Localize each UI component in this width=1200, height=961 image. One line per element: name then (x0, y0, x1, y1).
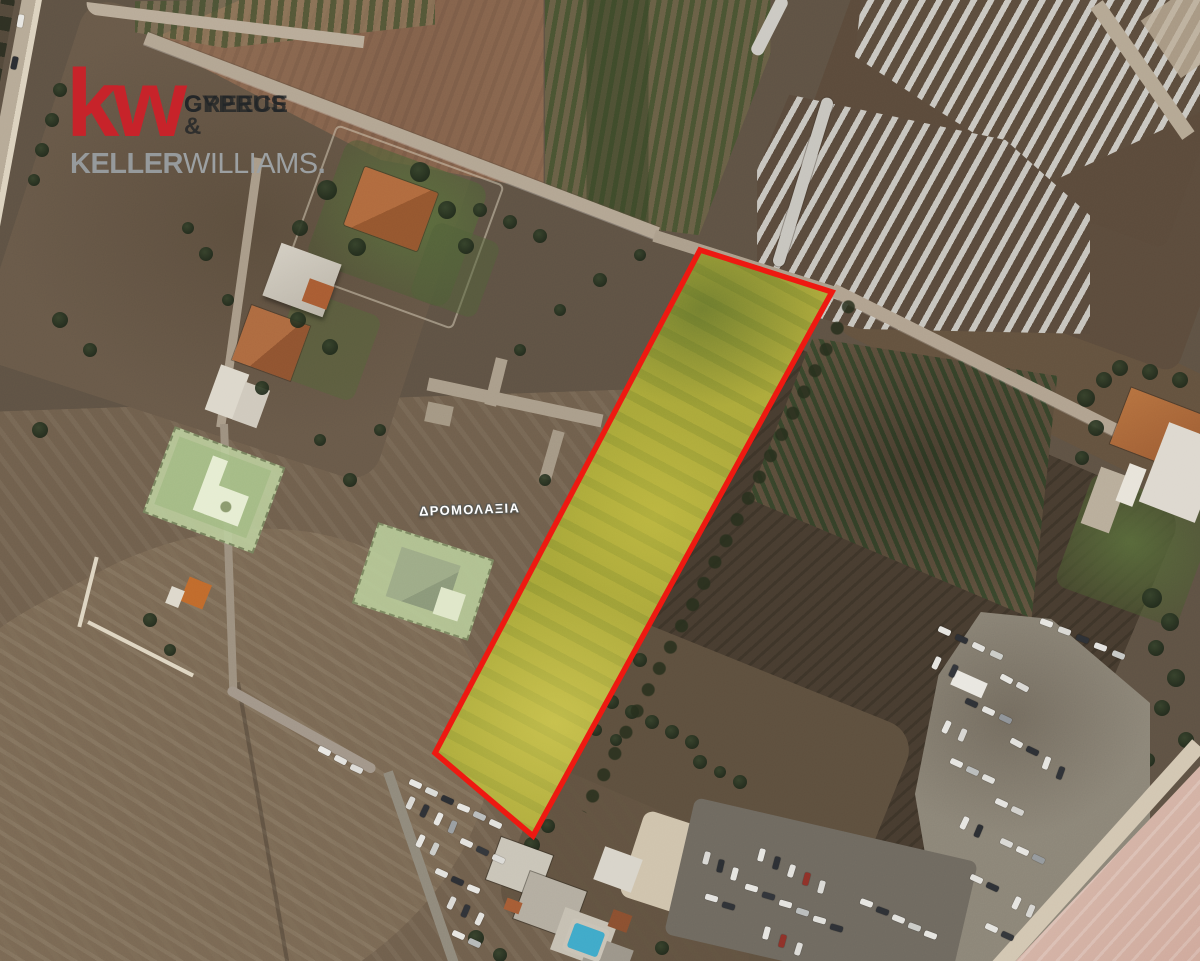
tree (503, 215, 517, 229)
keller-williams-watermark: kw GREECE & CYPRUS KELLERWILLIAMS. (70, 70, 390, 200)
kw-brand-name: KELLERWILLIAMS. (70, 148, 325, 181)
tree (410, 162, 430, 182)
tree (83, 343, 97, 357)
tree (290, 312, 306, 328)
tree (1112, 360, 1128, 376)
tree (164, 644, 176, 656)
tree (1148, 640, 1164, 656)
parcel-highlight-outline (435, 250, 835, 840)
tree (182, 222, 194, 234)
tree (493, 948, 507, 961)
tree (35, 143, 49, 157)
tree (655, 941, 669, 955)
tree (1088, 420, 1104, 436)
tree (1077, 389, 1095, 407)
kw-brand-suffix: . (318, 148, 326, 180)
tree (438, 201, 456, 219)
tree (348, 238, 366, 256)
tree (1167, 669, 1185, 687)
tree (473, 203, 487, 217)
kw-brand-regular: WILLIAMS (183, 148, 318, 180)
tree (45, 113, 59, 127)
tree (143, 613, 157, 627)
tree (52, 312, 68, 328)
tree (32, 422, 48, 438)
kw-region-line2: CYPRUS (184, 94, 287, 116)
tree (1154, 700, 1170, 716)
tree (533, 229, 547, 243)
kw-logo: kw (66, 56, 180, 152)
tree (374, 424, 386, 436)
tree (1172, 372, 1188, 388)
tree (28, 174, 40, 186)
aerial-photo: ΔΡΟΜΟΛΑΞΙΑ kw GREECE & CYPRUS KELLERWILL… (0, 0, 1200, 961)
tree (1096, 372, 1112, 388)
tree (343, 473, 357, 487)
tree (322, 339, 338, 355)
tree (222, 294, 234, 306)
tree (53, 83, 67, 97)
tree (292, 220, 308, 236)
tree (199, 247, 213, 261)
tree (255, 381, 269, 395)
kw-brand-bold: KELLER (70, 148, 183, 180)
tree (1142, 364, 1158, 380)
tree (1075, 451, 1089, 465)
tree (1161, 613, 1179, 631)
tree (1142, 588, 1162, 608)
tree (314, 434, 326, 446)
